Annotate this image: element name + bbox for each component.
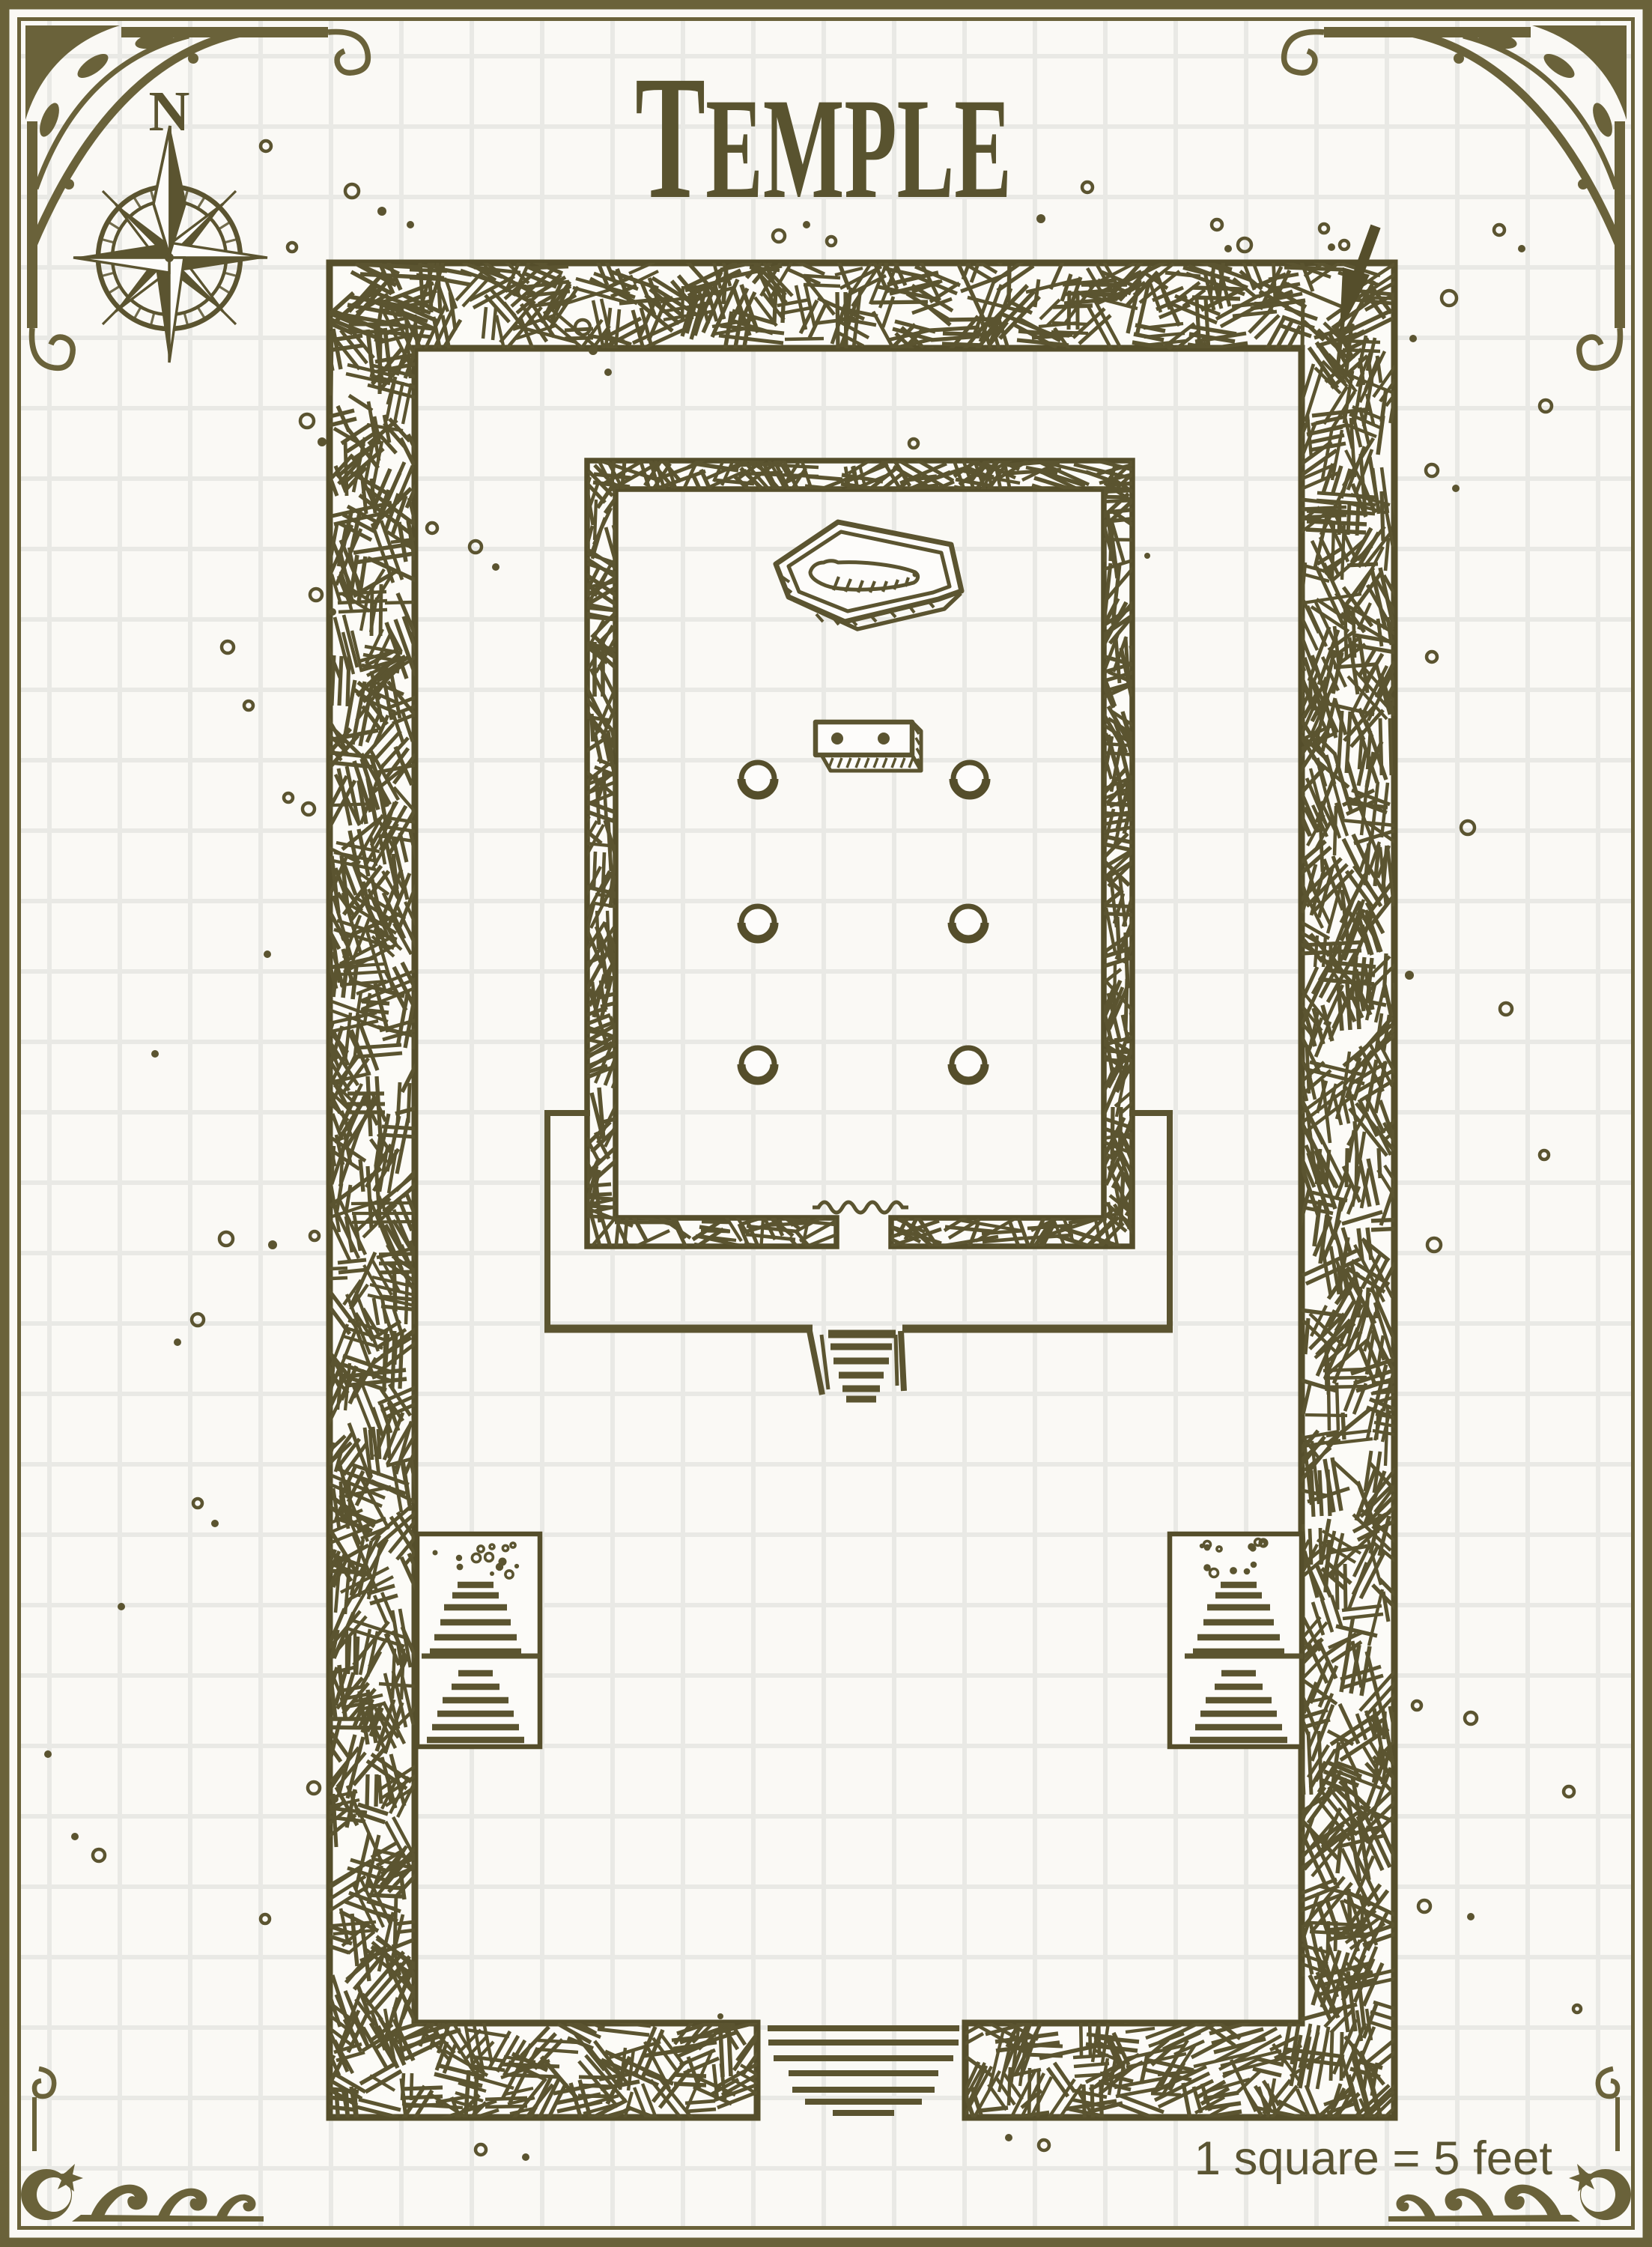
- svg-text:TEMPLE: TEMPLE: [635, 40, 1012, 236]
- svg-text:N: N: [149, 80, 190, 143]
- svg-text:1 square = 5 feet: 1 square = 5 feet: [1194, 2132, 1553, 2185]
